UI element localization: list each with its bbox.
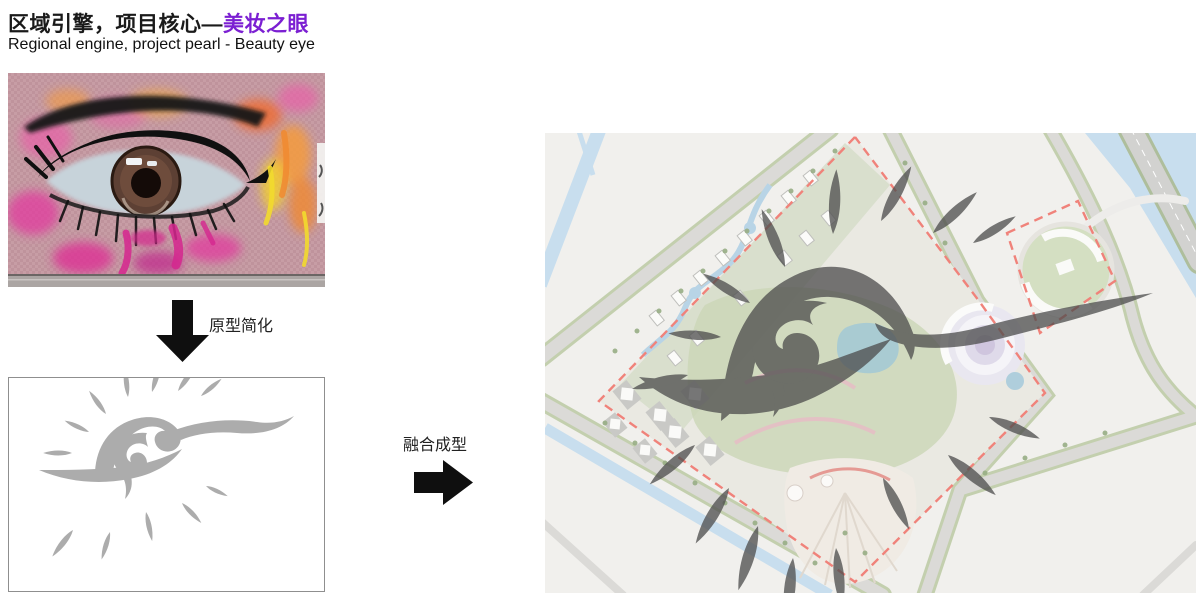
page-subtitle: Regional engine, project pearl - Beauty … — [8, 36, 315, 54]
eye-logo-sketch-box — [8, 377, 325, 592]
site-masterplan-with-eye-overlay — [545, 133, 1196, 593]
graffiti-eye-mural-art — [8, 73, 325, 287]
page-title-prefix: 区域引擎，项目核心— — [8, 13, 223, 36]
eye-logo-sketch — [9, 378, 324, 591]
step1-label: 原型简化 — [209, 312, 273, 336]
page-title: 区域引擎，项目核心—美妆之眼 — [8, 8, 309, 38]
site-masterplan — [545, 133, 1196, 593]
step2-label: 融合成型 — [403, 431, 467, 455]
page-title-accent: 美妆之眼 — [223, 13, 309, 36]
right-arrow-icon — [412, 458, 476, 508]
graffiti-eye-mural-photo — [8, 73, 325, 287]
